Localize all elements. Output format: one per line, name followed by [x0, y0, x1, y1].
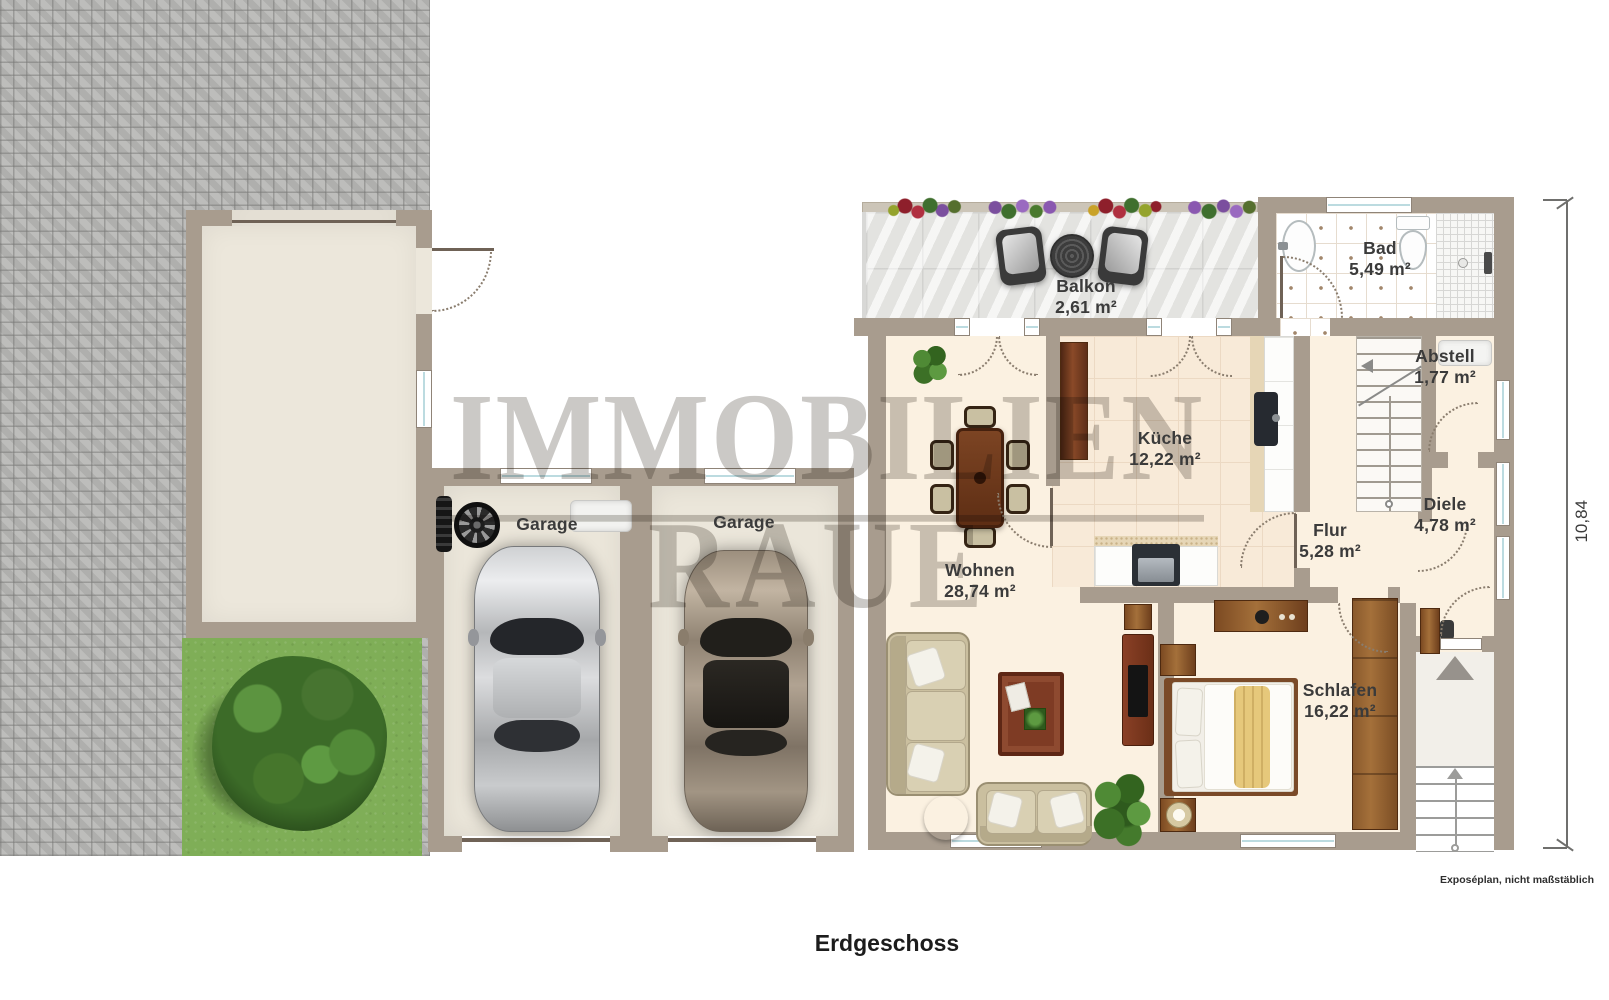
wall	[816, 836, 854, 852]
room-label-schlafen: Schlafen 16,22 m²	[1250, 680, 1430, 722]
diele-desk	[1420, 608, 1440, 654]
room-label-balkon: Balkon 2,61 m²	[996, 276, 1176, 318]
storage-window	[1496, 380, 1510, 440]
wall	[610, 836, 668, 852]
room-label-abstell: Abstell 1,77 m²	[1355, 346, 1535, 388]
tv-lowboard	[1122, 634, 1154, 746]
entrance-door-leaf	[1440, 638, 1482, 650]
balcony-door-living	[954, 318, 970, 336]
dimension-line	[1566, 200, 1568, 848]
disclaimer: Exposéplan, nicht maßstäblich	[1380, 874, 1594, 886]
car-rear-window	[494, 720, 580, 751]
dresser	[1214, 600, 1308, 632]
balcony-table	[1050, 234, 1094, 278]
chair-seat	[1001, 232, 1039, 275]
wall	[1038, 318, 1150, 336]
tree	[212, 656, 387, 831]
room-label-wohnen: Wohnen 28,74 m²	[890, 560, 1070, 602]
room-name: Diele	[1355, 494, 1535, 515]
room-area: 28,74 m²	[890, 581, 1070, 602]
dresser-knob	[1279, 614, 1285, 620]
nightstand	[1160, 644, 1196, 676]
bath-door-opening	[1280, 318, 1330, 336]
annex-floor	[202, 226, 416, 622]
car-rear-window	[705, 730, 787, 755]
bed-group	[1160, 642, 1302, 834]
magazine	[1005, 682, 1031, 712]
room-name: Balkon	[996, 276, 1176, 297]
plant	[1090, 772, 1154, 848]
flower-box	[1186, 194, 1258, 224]
sofa	[886, 632, 970, 796]
car-windshield	[490, 618, 583, 655]
room-label-bad: Bad 5,49 m²	[1290, 238, 1470, 280]
garage2-door-line	[668, 838, 816, 842]
room-area: 12,22 m²	[1075, 449, 1255, 470]
wall	[1330, 318, 1514, 336]
shelf-unit	[1124, 604, 1152, 630]
wall	[1478, 452, 1494, 468]
wall	[1294, 336, 1310, 512]
wall	[1482, 636, 1494, 652]
wall	[1294, 568, 1310, 587]
ext-stair-arrow	[1447, 768, 1463, 779]
wall	[186, 622, 432, 638]
flower-box	[1086, 194, 1162, 224]
annex-gate-opening	[232, 210, 396, 226]
room-label-kueche: Küche 12,22 m²	[1075, 428, 1255, 470]
toilet-tank	[1396, 216, 1430, 230]
car-silver	[474, 546, 600, 832]
bedroom-window	[1240, 834, 1336, 848]
stove	[1132, 544, 1180, 586]
tv-screen	[1128, 665, 1148, 717]
room-area: 16,22 m²	[1250, 701, 1430, 722]
sofa-back	[890, 636, 906, 794]
wall	[186, 210, 202, 638]
wall	[1436, 452, 1448, 468]
faucet	[1278, 242, 1288, 250]
chair-seat	[1104, 232, 1142, 275]
balcony-door-living	[1024, 318, 1040, 336]
oven-front	[1138, 558, 1174, 582]
sofa-cushion	[906, 691, 966, 741]
dresser-knob	[1289, 614, 1295, 620]
car-mirror	[468, 629, 479, 646]
room-area: 2,61 m²	[996, 297, 1176, 318]
dimension-arrow-bottom2	[1543, 847, 1567, 849]
room-label-garage1: Garage	[465, 514, 629, 535]
ext-stair-rail	[1455, 776, 1457, 848]
car-mirror	[595, 629, 606, 646]
wall	[1410, 197, 1514, 213]
room-name: Küche	[1075, 428, 1255, 449]
annex-gate-line	[232, 220, 396, 223]
flower-box	[986, 194, 1062, 224]
exterior-stairs	[1416, 766, 1494, 852]
garage1-door-line	[462, 838, 610, 842]
room-area: 4,78 m²	[1355, 515, 1535, 536]
lawn	[182, 638, 422, 856]
ext-stair-newel	[1451, 844, 1459, 852]
annex-door-arc	[432, 251, 492, 312]
bed-pillow	[1175, 687, 1203, 736]
car-roof	[493, 658, 581, 718]
page-title: Erdgeschoss	[737, 930, 1037, 957]
room-name: Bad	[1290, 238, 1470, 259]
dimension-arrow-top2	[1543, 199, 1567, 201]
dresser-bowl	[1255, 610, 1269, 624]
car-roof	[703, 660, 790, 728]
annex-window	[416, 370, 432, 428]
dimension-label: 10,84	[1572, 500, 1592, 543]
flower-box	[886, 194, 962, 224]
bed-pillow	[1175, 739, 1203, 788]
lamp	[1166, 802, 1192, 828]
wall	[1258, 197, 1276, 336]
room-area: 5,28 m²	[1240, 541, 1420, 562]
room-area: 1,77 m²	[1355, 367, 1535, 388]
dimension-arrow-bottom	[1556, 838, 1574, 851]
entrance-arrow	[1436, 656, 1474, 680]
coffee-table-rug	[998, 672, 1064, 756]
wall	[854, 318, 958, 336]
shower-fixture	[1484, 252, 1492, 274]
balcony-door-kitchen	[1146, 318, 1162, 336]
floor-plan: IMMOBILIEN RAUE Balkon 2,61 m² Bad 5,49 …	[0, 0, 1609, 1000]
room-name: Wohnen	[890, 560, 1070, 581]
room-label-garage2: Garage	[662, 512, 826, 533]
rug-plant	[1024, 708, 1046, 730]
diele-window	[1496, 536, 1510, 600]
room-name: Schlafen	[1250, 680, 1430, 701]
room-label-diele: Diele 4,78 m²	[1355, 494, 1535, 536]
bath-window	[1326, 197, 1412, 213]
room-area: 5,49 m²	[1290, 259, 1470, 280]
annex-door-opening	[416, 248, 432, 314]
kitchen-faucet	[1272, 414, 1280, 422]
wall	[428, 836, 462, 852]
loveseat	[976, 782, 1092, 846]
room-name: Abstell	[1355, 346, 1535, 367]
balcony-door-kitchen	[1216, 318, 1232, 336]
side-table	[924, 796, 968, 840]
